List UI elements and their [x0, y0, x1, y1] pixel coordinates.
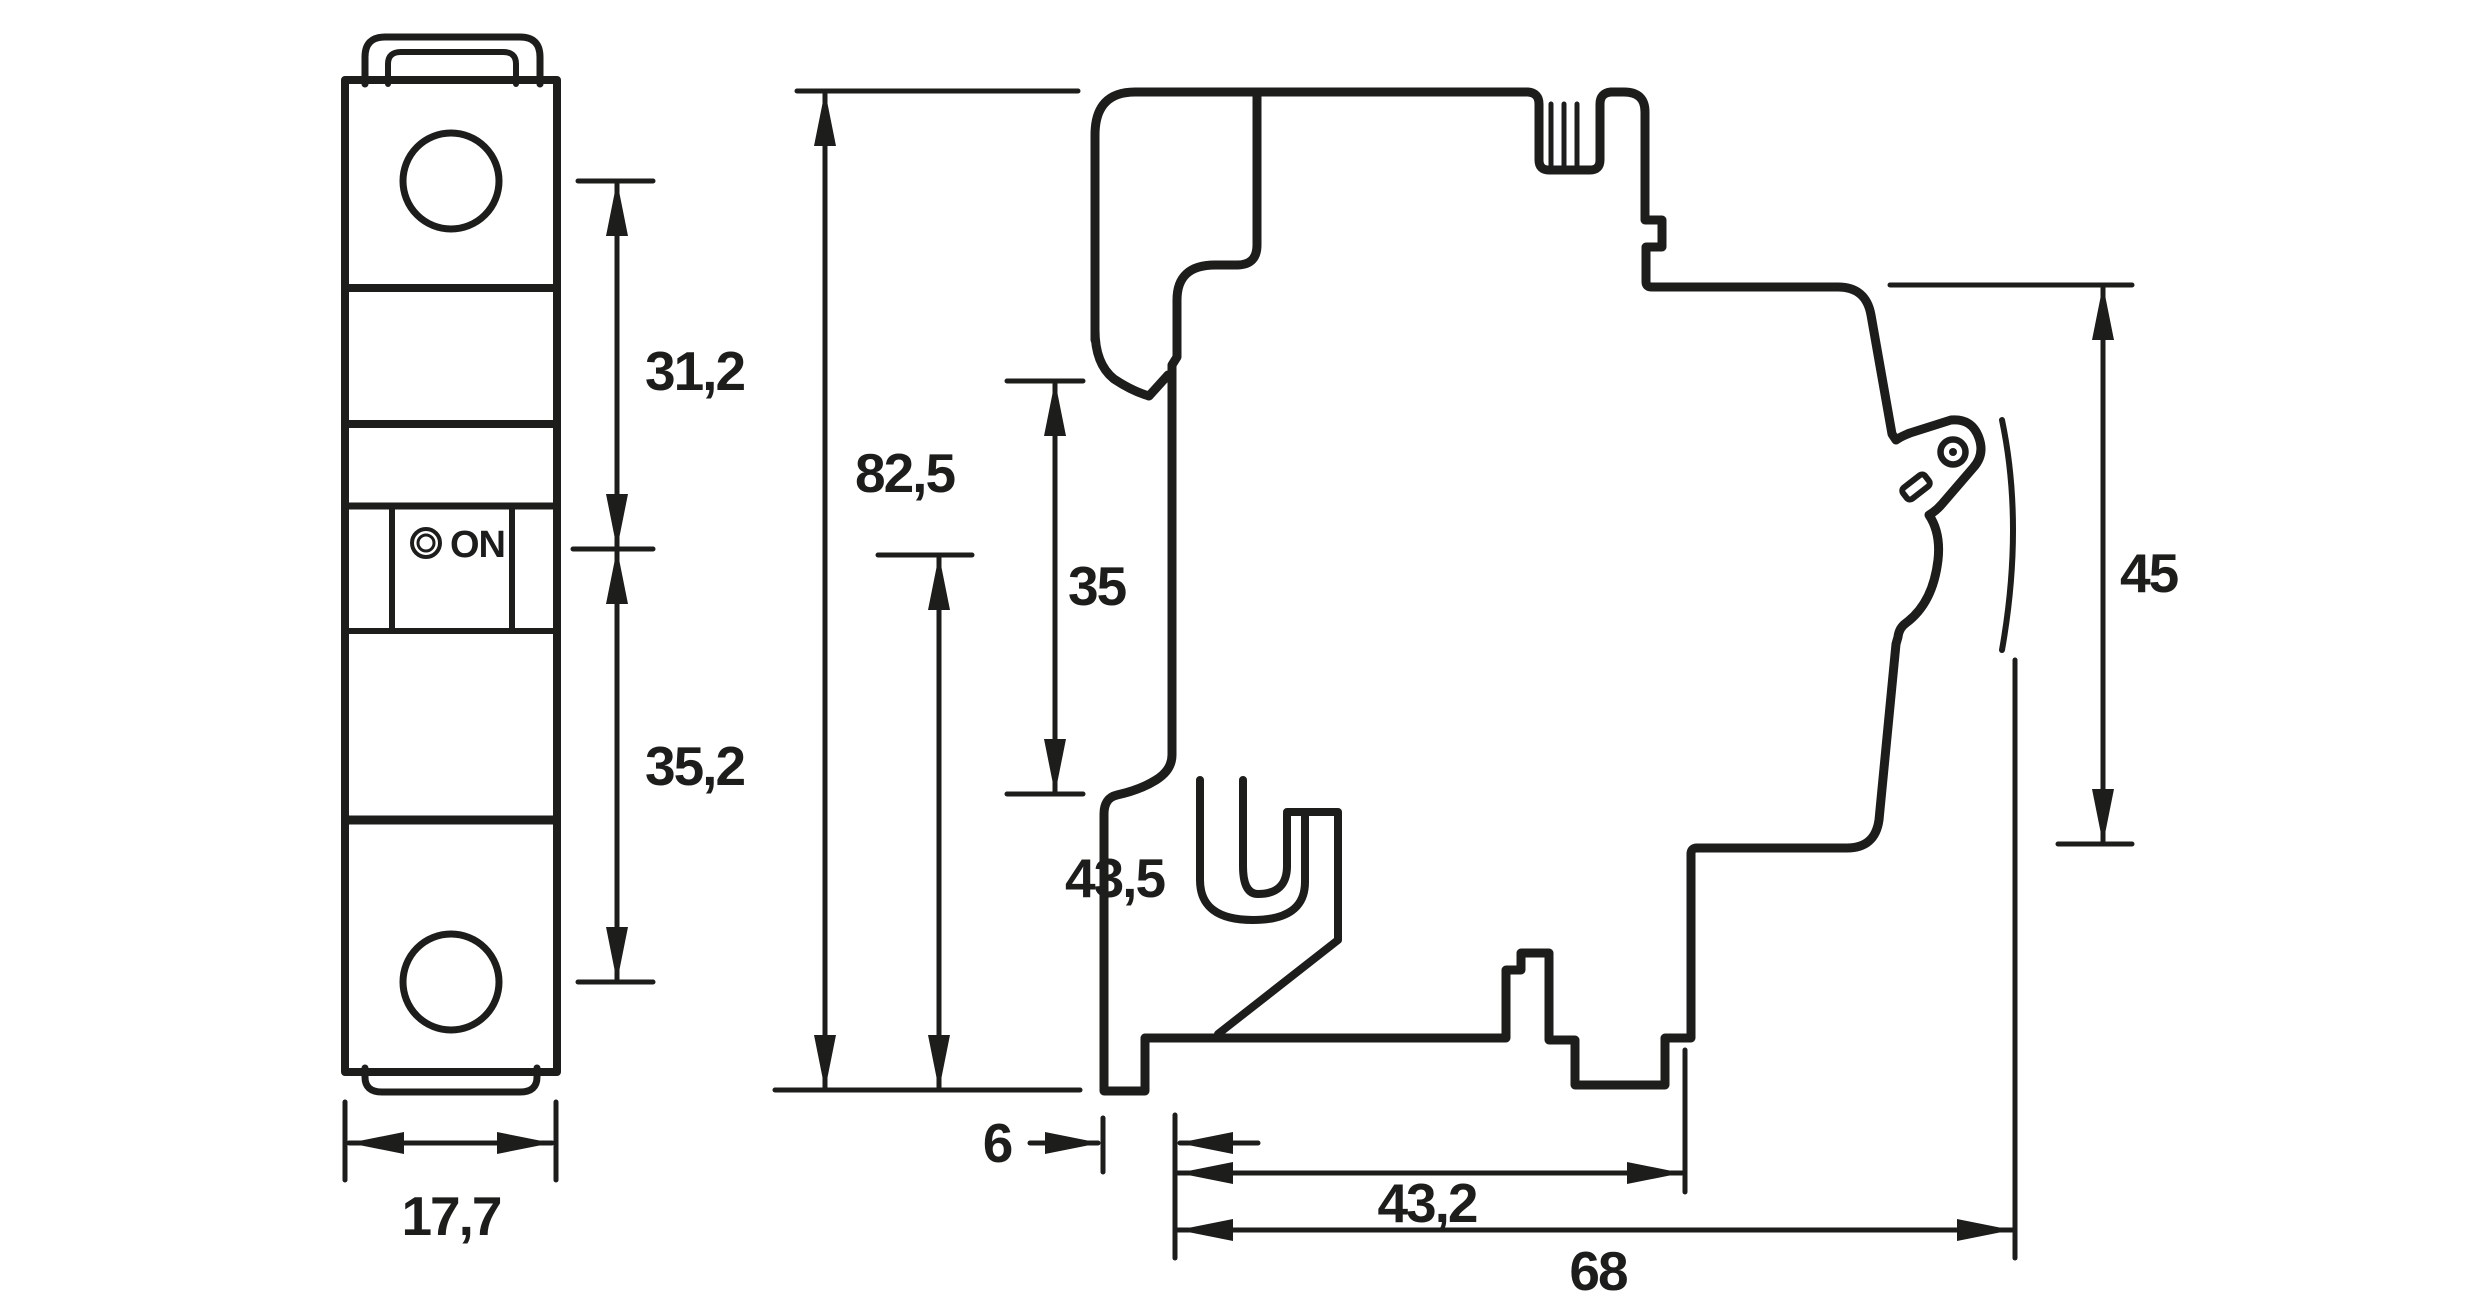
dim-label-35: 35: [1068, 555, 1127, 617]
side-view-dimensions: 82,5 43,5 35 45 6 43,2: [775, 91, 2179, 1299]
lever-slot-icon: [1901, 473, 1932, 501]
arrow-68-left-icon: [1178, 1219, 1233, 1241]
arrow-17-7-left-icon: [349, 1132, 404, 1154]
arrow-35-2-up-icon: [606, 549, 628, 604]
dim-label-35-2: 35,2: [645, 735, 744, 797]
dim-label-43-2: 43,2: [1377, 1172, 1476, 1234]
on-indicator-inner-ring-icon: [418, 535, 434, 551]
din-clip-inner-u: [1243, 780, 1287, 894]
dim-label-43-5: 43,5: [1065, 847, 1165, 909]
arrow-45-up-icon: [2092, 285, 2114, 340]
arrow-35-up-icon: [1044, 381, 1066, 436]
dim-label-68: 68: [1569, 1240, 1627, 1299]
on-label: ON: [450, 524, 505, 566]
front-view: ON: [345, 37, 557, 1092]
arrow-43-2-left-icon: [1178, 1162, 1233, 1184]
arrow-35-2-down-icon: [606, 927, 628, 982]
side-view: [1095, 92, 2013, 1091]
lever-travel-arc: [2002, 420, 2013, 650]
arrow-35-down-icon: [1044, 739, 1066, 794]
din-clip-latch: [1287, 812, 1338, 848]
arrow-43-2-right-icon: [1627, 1162, 1682, 1184]
arrow-43-5-up-icon: [928, 555, 950, 610]
dim-label-17-7: 17,7: [401, 1185, 500, 1247]
arrow-6-left-icon: [1178, 1132, 1233, 1154]
mcb-dimension-drawing: ON 31,2 35,2 17,7: [0, 0, 2480, 1299]
on-indicator-outer-ring-icon: [412, 529, 440, 557]
arrow-17-7-right-icon: [497, 1132, 552, 1154]
dim-label-31-2: 31,2: [645, 340, 744, 402]
arrow-82-5-down-icon: [814, 1035, 836, 1090]
drawing-canvas: ON 31,2 35,2 17,7: [0, 0, 2480, 1299]
arrow-31-2-down-icon: [606, 494, 628, 549]
dim-label-45: 45: [2120, 542, 2179, 604]
din-clip-spring-arm: [1218, 848, 1338, 1034]
dim-label-82-5: 82,5: [855, 442, 955, 504]
arrow-43-5-down-icon: [928, 1035, 950, 1090]
side-upper-lobe-bottom: [1095, 330, 1168, 396]
front-view-dimensions: 31,2 35,2 17,7: [345, 181, 744, 1247]
arrow-82-5-up-icon: [814, 91, 836, 146]
lever-hole-center-icon: [1949, 448, 1957, 456]
dim-label-6: 6: [983, 1112, 1012, 1174]
front-terminal-circle-bottom: [403, 934, 499, 1030]
arrow-45-down-icon: [2092, 789, 2114, 844]
arrow-68-right-icon: [1957, 1219, 2012, 1241]
front-terminal-circle-top: [403, 133, 499, 229]
side-outline: [1095, 92, 1981, 1091]
arrow-31-2-up-icon: [606, 181, 628, 236]
arrow-6-right-icon: [1045, 1132, 1100, 1154]
